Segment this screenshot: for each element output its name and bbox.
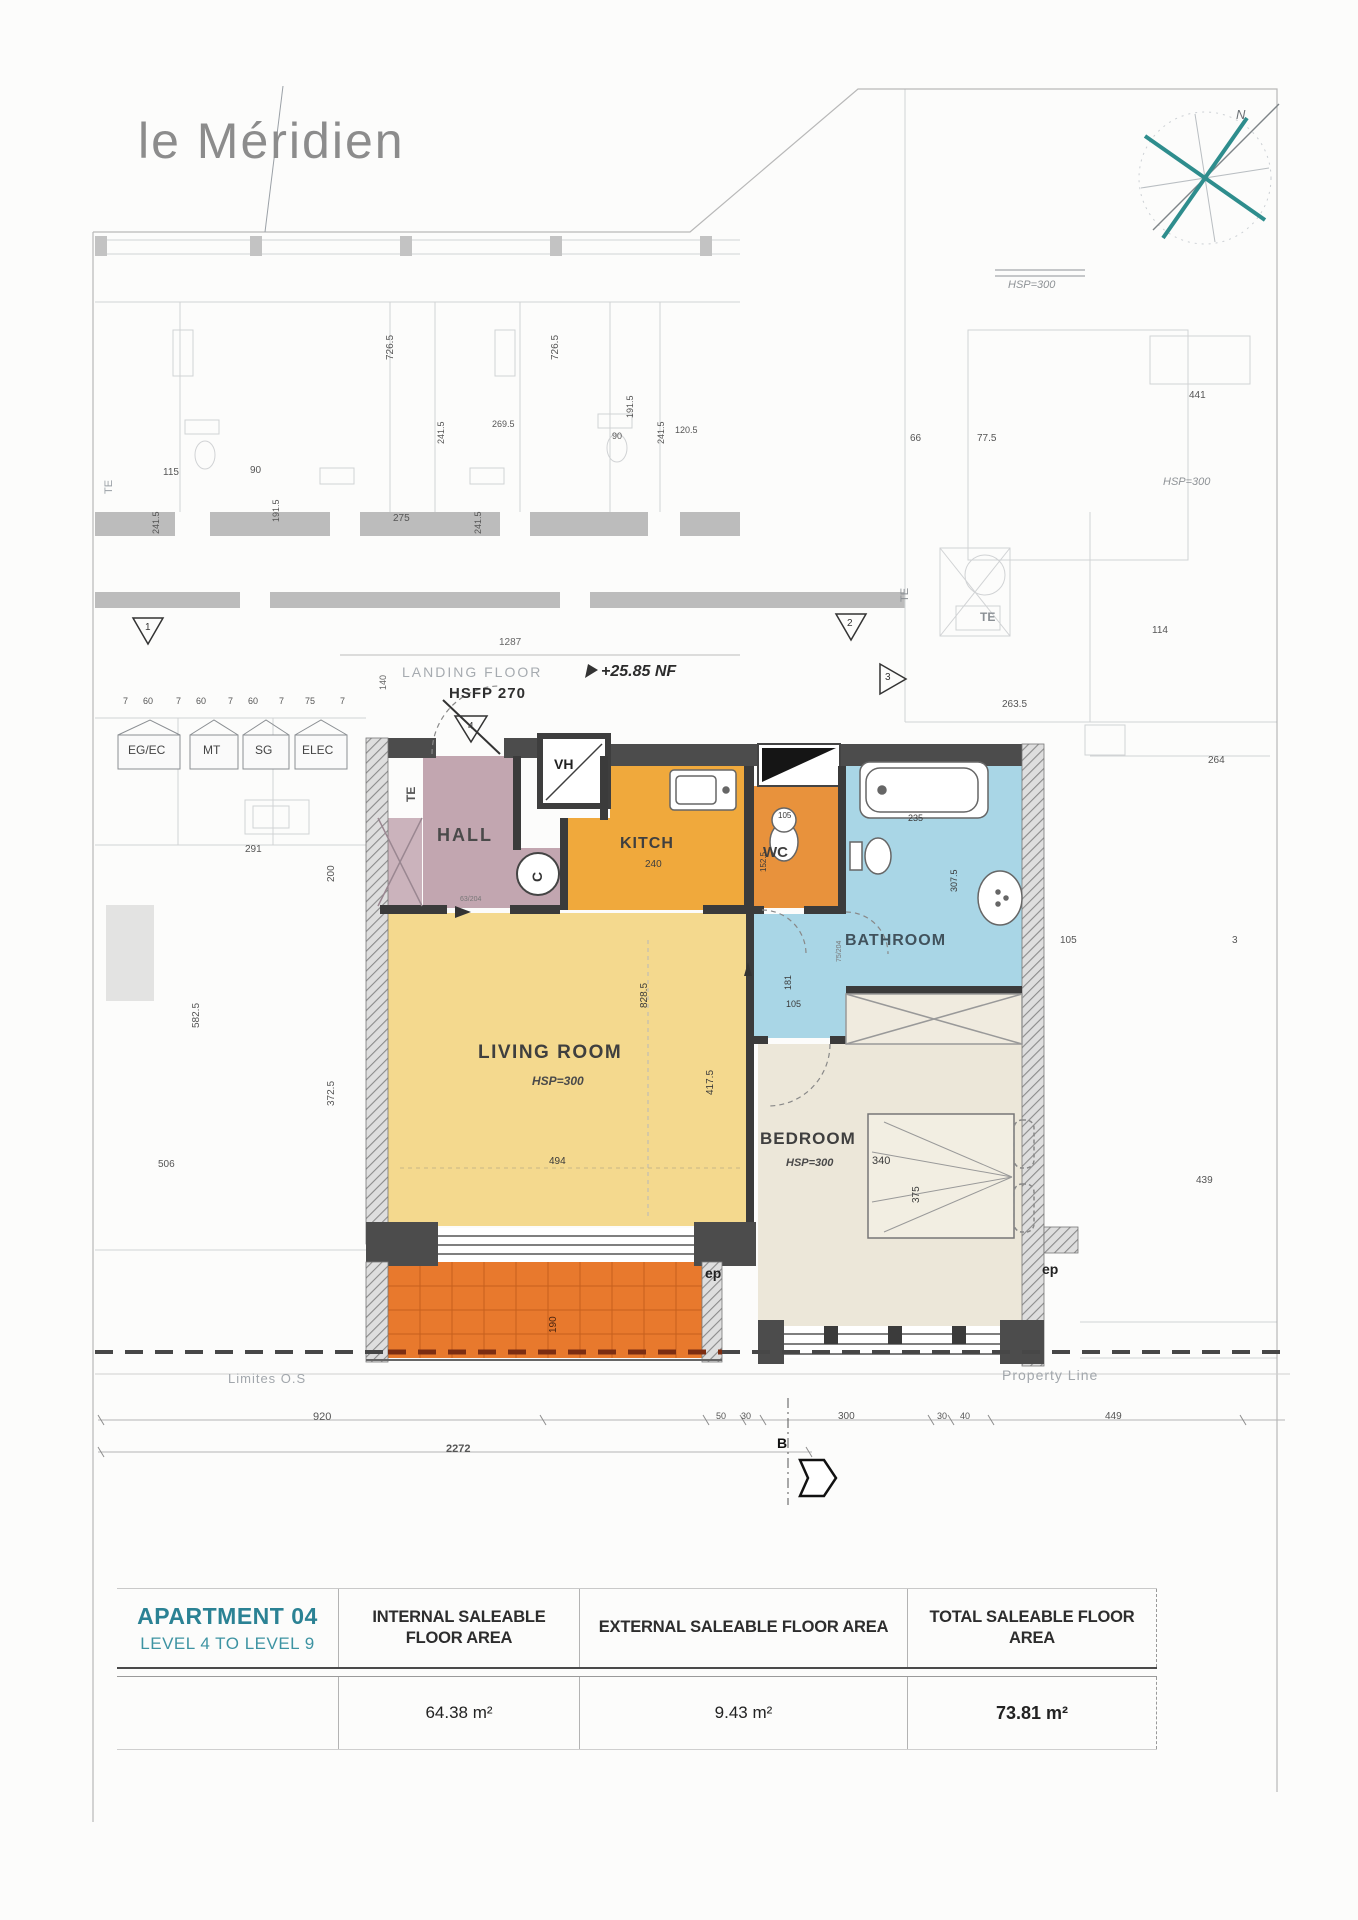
dim-label: 828.5 [640, 983, 650, 1008]
total-area-header: TOTAL SALEABLE FLOOR AREA [926, 1607, 1138, 1650]
room-label-kitchen: KITCH [620, 836, 674, 852]
dim-label: 269.5 [492, 420, 515, 429]
dim-label: 1287 [499, 638, 521, 648]
dim-label: 241.5 [657, 421, 666, 444]
dim-label: 241.5 [474, 511, 483, 534]
saleable-area-table: APARTMENT 04 LEVEL 4 TO LEVEL 9 INTERNAL… [117, 1588, 1157, 1750]
dim-label: 241.5 [152, 511, 161, 534]
total-area-value-cell: 73.81 m² [907, 1677, 1157, 1749]
dim-label: 114 [1152, 626, 1168, 636]
total-area-value: 73.81 m² [996, 1703, 1068, 1724]
internal-area-value: 64.38 m² [425, 1703, 492, 1723]
dim-label: 241.5 [437, 421, 446, 444]
dim-label: 40 [960, 1412, 970, 1421]
te-label: TE [900, 588, 911, 602]
table-divider [117, 1667, 1157, 1677]
total-area-header-cell: TOTAL SALEABLE FLOOR AREA [907, 1589, 1157, 1667]
ceiling-height-label: HSP=300 [1008, 280, 1055, 291]
dim-label: 7 [176, 697, 181, 706]
external-area-value: 9.43 m² [715, 1703, 773, 1723]
external-area-header: EXTERNAL SALEABLE FLOOR AREA [599, 1617, 889, 1638]
section-marker-2: 2 [847, 619, 853, 629]
dim-label: 152.5 [760, 852, 768, 872]
internal-area-header: INTERNAL SALEABLE FLOOR AREA [357, 1607, 561, 1650]
dim-label: 240 [645, 860, 662, 870]
dim-label: 340 [872, 1156, 890, 1167]
vh-shaft-label: VH [554, 757, 573, 771]
external-area-header-cell: EXTERNAL SALEABLE FLOOR AREA [579, 1589, 907, 1667]
dim-label: 50 [716, 1412, 726, 1421]
dim-label: 66 [910, 434, 921, 444]
dim-label: 291 [245, 845, 262, 855]
dim-label: 115 [163, 468, 179, 478]
room-label-living-room: LIVING ROOM [478, 1043, 622, 1062]
dim-label: 60 [248, 697, 258, 706]
dim-label: 726.5 [386, 335, 396, 360]
section-marker-1: 1 [145, 623, 151, 633]
dim-label: 30 [937, 1412, 947, 1421]
landing-floor-label: LANDING FLOOR [402, 665, 542, 679]
section-marker-b: B [777, 1436, 787, 1450]
column-label: C [530, 872, 544, 882]
dim-label: 2272 [446, 1444, 470, 1455]
dim-label: 120.5 [675, 426, 698, 435]
ceiling-height-label: HSP=300 [786, 1158, 833, 1169]
dim-label: 200 [327, 865, 337, 882]
property-line-label: Property Line [1002, 1368, 1098, 1382]
utility-label-elec: ELEC [302, 744, 333, 756]
room-label-bedroom: BEDROOM [760, 1130, 856, 1147]
te-label: TE [980, 611, 995, 623]
dim-label: 300 [838, 1412, 855, 1422]
room-label-bathroom: BATHROOM [845, 933, 946, 949]
dim-label: 372.5 [327, 1081, 337, 1106]
ceiling-height-label: HSP=300 [1163, 477, 1210, 488]
dim-label: 63/204 [460, 896, 481, 903]
dim-label: 75 [305, 697, 315, 706]
dim-label: 235 [908, 814, 923, 823]
dim-label: 105 [1060, 936, 1077, 946]
section-marker-3: 3 [885, 673, 891, 683]
room-label-hall: HALL [437, 826, 493, 844]
dim-label: 181 [784, 975, 793, 990]
internal-area-header-cell: INTERNAL SALEABLE FLOOR AREA [338, 1589, 579, 1667]
te-label: TE [405, 787, 417, 802]
floor-plan-sheet: le Méridien HALLKITCH240WCBATHROOMLIVING… [0, 0, 1358, 1920]
dim-label: 77.5 [977, 434, 996, 444]
dim-label: 190 [549, 1316, 559, 1333]
dim-label: 494 [549, 1157, 566, 1167]
dim-label: 30 [741, 1412, 751, 1421]
dim-label: 441 [1189, 391, 1206, 401]
section-marker-4: 4 [468, 722, 474, 732]
dim-label: 264 [1208, 756, 1225, 766]
dim-label: 506 [158, 1160, 175, 1170]
ep-label: ep [705, 1266, 721, 1280]
apartment-title: APARTMENT 04 [137, 1603, 318, 1630]
compass-n-label: N [1236, 108, 1245, 121]
empty-cell [117, 1677, 338, 1749]
dim-label: 191.5 [626, 395, 635, 418]
dim-label: 7 [340, 697, 345, 706]
dim-label: 263.5 [1002, 700, 1027, 710]
dim-label: 90 [612, 432, 622, 441]
dim-label: 7 [123, 697, 128, 706]
hsfp-label: HSFP 270 [449, 686, 526, 701]
level-label: +25.85 NF [601, 664, 676, 680]
dim-label: 726.5 [551, 335, 561, 360]
dim-label: 3 [1232, 936, 1238, 946]
te-label: TE [104, 480, 115, 494]
dim-label: 375 [912, 1186, 922, 1203]
utility-label-egec: EG/EC [128, 744, 165, 756]
apartment-title-cell: APARTMENT 04 LEVEL 4 TO LEVEL 9 [117, 1589, 338, 1667]
dim-label: 307.5 [950, 869, 959, 892]
utility-label-mt: MT [203, 744, 220, 756]
dim-label: 449 [1105, 1412, 1122, 1422]
dim-label: 140 [379, 675, 388, 690]
dim-label: 105 [786, 1000, 801, 1009]
utility-label-sg: SG [255, 744, 272, 756]
dim-label: 920 [313, 1412, 331, 1423]
limites-os-label: Limites O.S [228, 1372, 306, 1385]
dim-label: 582.5 [192, 1003, 202, 1028]
dim-label: 90 [250, 466, 261, 476]
dim-label: 75/204 [836, 941, 843, 962]
dim-label: 275 [393, 514, 410, 524]
dim-label: 60 [143, 697, 153, 706]
dim-label: 105 [778, 812, 791, 820]
dim-label: 60 [196, 697, 206, 706]
external-area-value-cell: 9.43 m² [579, 1677, 907, 1749]
internal-area-value-cell: 64.38 m² [338, 1677, 579, 1749]
dim-label: 191.5 [272, 499, 281, 522]
ceiling-height-label: HSP=300 [532, 1075, 584, 1087]
dim-label: 439 [1196, 1176, 1213, 1186]
apartment-levels: LEVEL 4 TO LEVEL 9 [140, 1634, 314, 1654]
dim-label: 417.5 [706, 1070, 716, 1095]
dim-label: 7 [228, 697, 233, 706]
dim-label: 7 [279, 697, 284, 706]
ep-label: ep [1042, 1262, 1058, 1276]
